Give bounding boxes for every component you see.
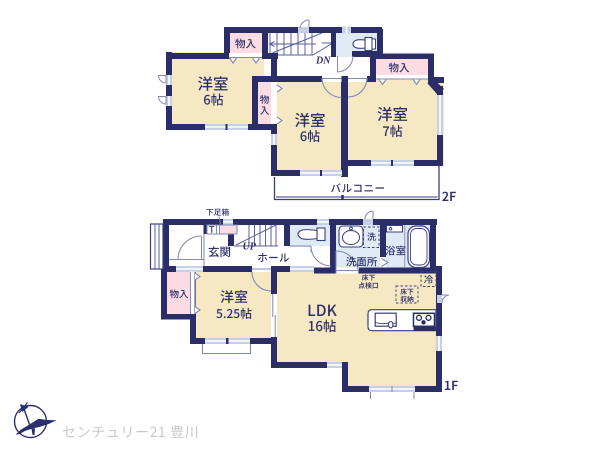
svg-text:DN: DN — [315, 56, 331, 67]
svg-text:UP: UP — [243, 242, 257, 253]
